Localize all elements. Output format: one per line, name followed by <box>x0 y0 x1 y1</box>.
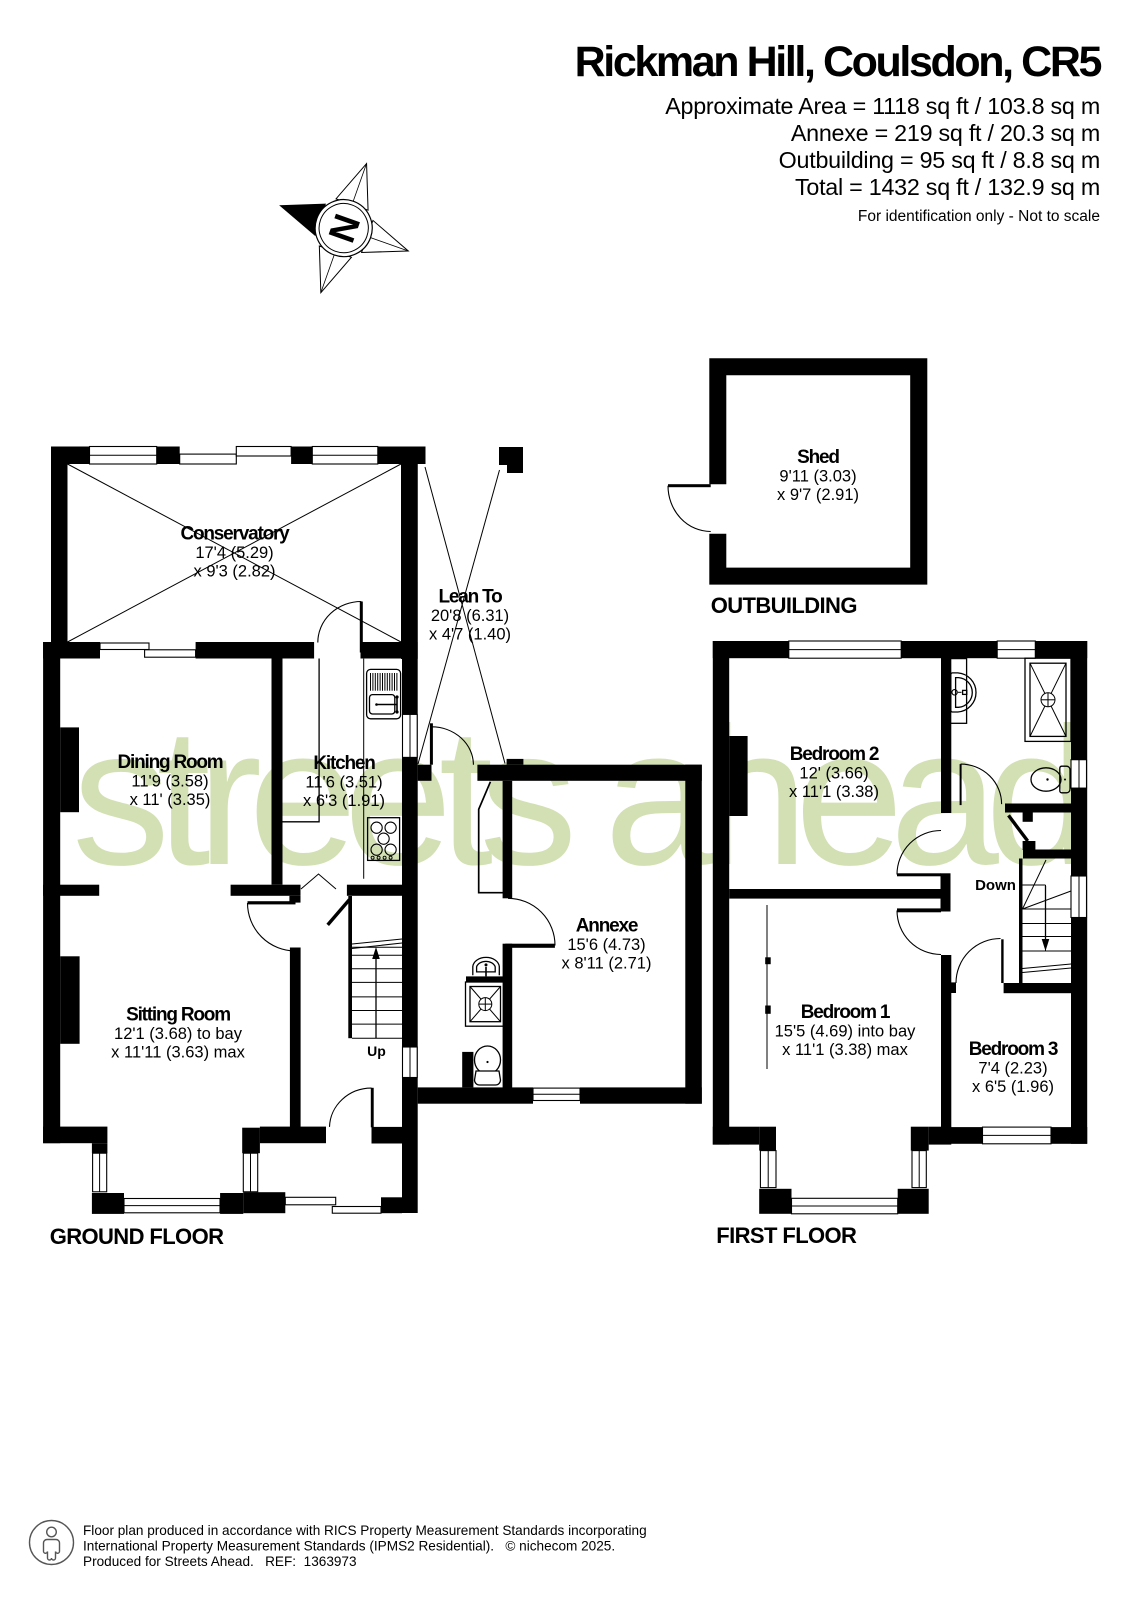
svg-text:FIRST FLOOR: FIRST FLOOR <box>716 1223 857 1248</box>
svg-text:9'11 (3.03): 9'11 (3.03) <box>779 468 856 486</box>
svg-text:Dining Room: Dining Room <box>117 752 222 773</box>
svg-text:x 11'11 (3.63) max: x 11'11 (3.63) max <box>111 1044 245 1062</box>
svg-text:Annexe = 219 sq ft / 20.3 sq m: Annexe = 219 sq ft / 20.3 sq m <box>791 120 1100 146</box>
svg-text:x 9'3 (2.82): x 9'3 (2.82) <box>193 563 275 581</box>
svg-text:12' (3.66): 12' (3.66) <box>799 765 868 783</box>
svg-text:x 11'1 (3.38): x 11'1 (3.38) <box>789 783 879 801</box>
svg-text:Bedroom 3: Bedroom 3 <box>969 1039 1058 1060</box>
svg-text:OUTBUILDING: OUTBUILDING <box>711 593 857 618</box>
svg-text:Lean To: Lean To <box>438 586 502 607</box>
svg-text:Down: Down <box>975 877 1016 894</box>
svg-text:x 6'3 (1.91): x 6'3 (1.91) <box>303 792 385 810</box>
svg-text:Produced for Streets Ahead.: Produced for Streets Ahead. REF: 1363973 <box>83 1554 357 1569</box>
svg-text:17'4 (5.29): 17'4 (5.29) <box>195 544 273 562</box>
svg-text:GROUND FLOOR: GROUND FLOOR <box>50 1224 224 1249</box>
svg-text:15'6 (4.73): 15'6 (4.73) <box>567 936 645 954</box>
svg-text:Annexe: Annexe <box>576 915 638 936</box>
svg-text:x 11'1 (3.38) max: x 11'1 (3.38) max <box>782 1041 908 1059</box>
svg-text:x 6'5 (1.96): x 6'5 (1.96) <box>972 1078 1054 1096</box>
svg-text:x 4'7 (1.40): x 4'7 (1.40) <box>429 625 511 643</box>
svg-text:11'6 (3.51): 11'6 (3.51) <box>305 774 382 792</box>
svg-text:11'9 (3.58): 11'9 (3.58) <box>131 773 208 791</box>
svg-text:Shed: Shed <box>797 447 839 468</box>
svg-text:Floor plan produced in accorda: Floor plan produced in accordance with R… <box>83 1523 647 1538</box>
svg-text:For identification only - Not: For identification only - Not to scale <box>858 208 1100 225</box>
svg-text:x 8'11 (2.71): x 8'11 (2.71) <box>562 954 652 972</box>
svg-text:15'5 (4.69) into bay: 15'5 (4.69) into bay <box>775 1023 916 1041</box>
svg-text:International Property Measure: International Property Measurement Stand… <box>83 1539 615 1554</box>
svg-text:Rickman Hill, Coulsdon, CR5: Rickman Hill, Coulsdon, CR5 <box>575 38 1102 86</box>
svg-text:streets ahead: streets ahead <box>72 687 1082 906</box>
svg-text:x 11' (3.35): x 11' (3.35) <box>130 791 211 809</box>
svg-text:7'4 (2.23): 7'4 (2.23) <box>978 1060 1047 1078</box>
svg-text:Sitting Room: Sitting Room <box>126 1005 230 1026</box>
svg-text:Conservatory: Conservatory <box>180 524 290 545</box>
svg-text:Up: Up <box>367 1043 386 1059</box>
svg-text:Approximate Area = 1118 sq ft: Approximate Area = 1118 sq ft / 103.8 sq… <box>665 93 1100 119</box>
svg-text:12'1 (3.68) to bay: 12'1 (3.68) to bay <box>114 1025 243 1043</box>
svg-text:Kitchen: Kitchen <box>313 753 375 774</box>
svg-text:Total = 1432 sq ft / 132.9 sq: Total = 1432 sq ft / 132.9 sq m <box>795 174 1100 200</box>
svg-text:Bedroom 2: Bedroom 2 <box>790 744 879 765</box>
svg-text:20'8 (6.31): 20'8 (6.31) <box>431 607 509 625</box>
svg-text:Outbuilding = 95 sq ft / 8.8 s: Outbuilding = 95 sq ft / 8.8 sq m <box>779 147 1100 173</box>
svg-text:Bedroom 1: Bedroom 1 <box>801 1002 891 1023</box>
svg-text:x 9'7 (2.91): x 9'7 (2.91) <box>777 486 859 504</box>
